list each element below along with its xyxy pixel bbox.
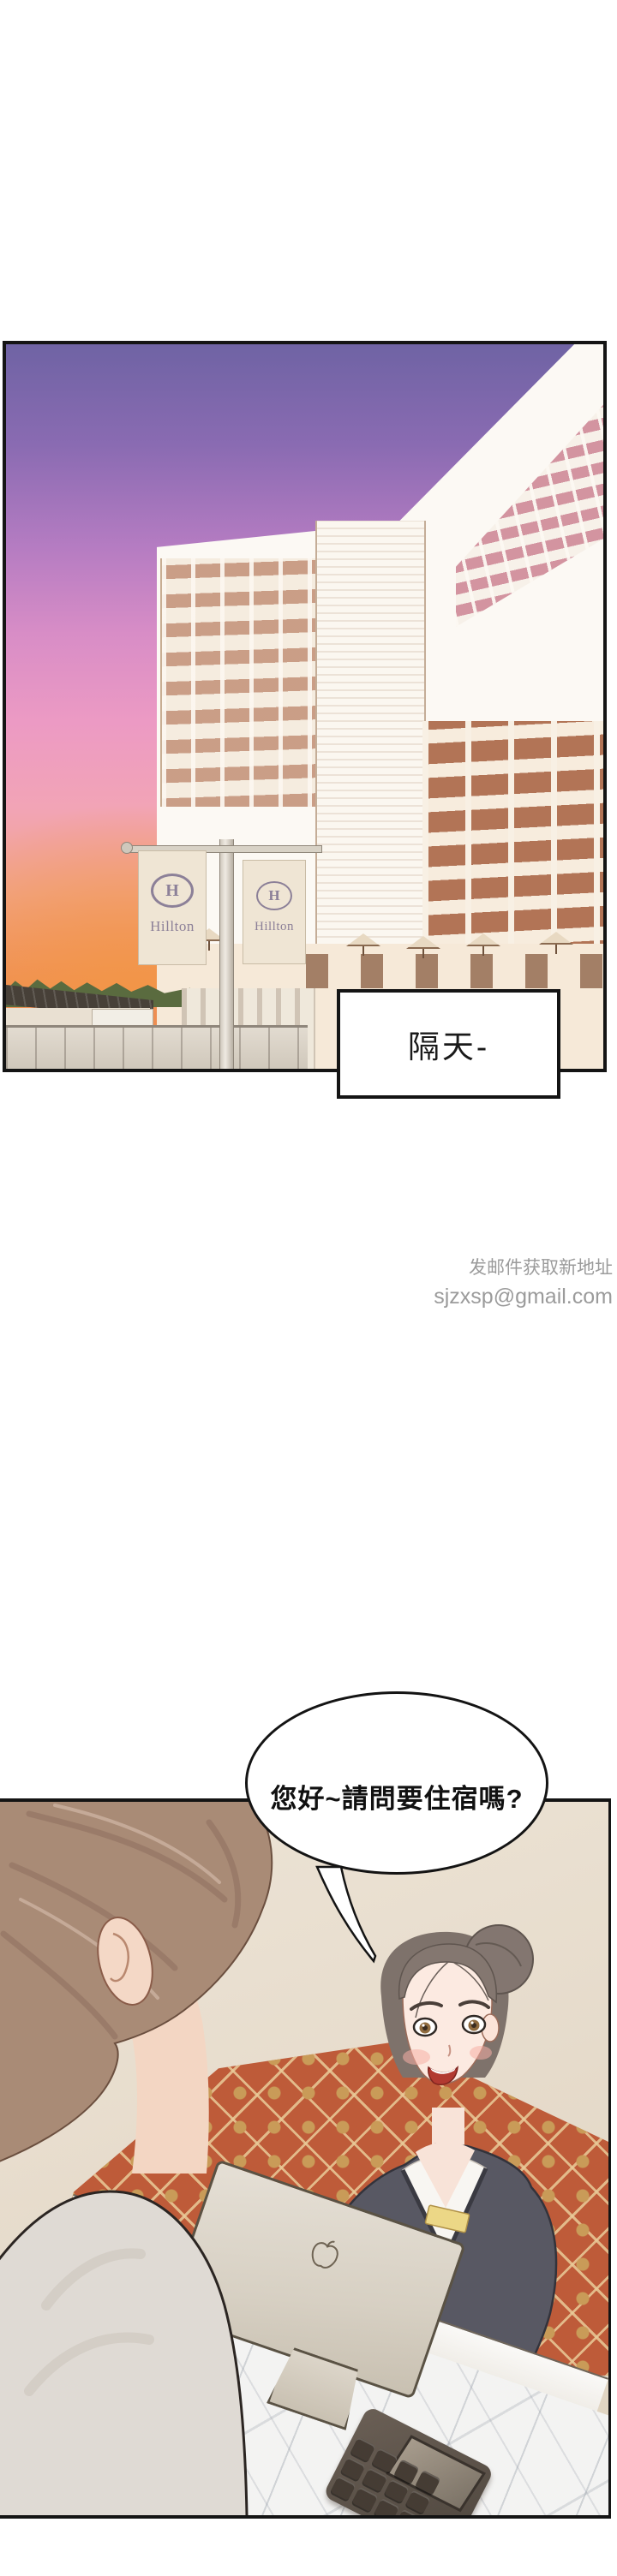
hotel-logo-icon: H (151, 874, 194, 908)
man-shirt (0, 2191, 247, 2515)
umbrella-icon (404, 936, 442, 958)
hotel-banner-label: Hillton (150, 918, 195, 935)
glass-canopy (6, 1025, 308, 1071)
umbrella-icon (344, 933, 382, 956)
speech-bubble-tail (310, 1865, 379, 1966)
hotel-banner-label: Hillton (255, 920, 294, 934)
umbrella-icon (537, 932, 575, 954)
hotel-left-wing (160, 558, 320, 807)
speech-text: 您好~請問要住宿嗎? (270, 1777, 523, 1816)
watermark-line-2: sjzxsp@gmail.com (434, 1282, 613, 1311)
hotel-logo-icon: H (256, 881, 292, 910)
hotel-logo-letter: H (165, 881, 179, 901)
speech-bubble: 您好~請問要住宿嗎? (245, 1691, 548, 1875)
watermark: 发邮件获取新地址 sjzxsp@gmail.com (434, 1255, 613, 1311)
watermark-line-1: 发邮件获取新地址 (434, 1255, 613, 1282)
entrance-doors (306, 954, 603, 988)
hotel-banner-left: H Hillton (138, 850, 207, 965)
umbrella-icon (464, 933, 502, 956)
hotel-logo-letter: H (268, 887, 279, 904)
panel-reception (0, 1798, 611, 2519)
hotel-banner-right: H Hillton (243, 860, 306, 964)
banner-pole (219, 839, 234, 1069)
customer-man-shoulder (0, 2168, 261, 2515)
blush-left (403, 2049, 430, 2065)
caption-text: 隔天- (408, 1021, 489, 1067)
caption-box: 隔天- (337, 989, 560, 1099)
blush-right (470, 2046, 492, 2060)
comic-page: H Hillton H Hillton 隔天- 发邮件获取新地址 sjzxsp@… (0, 0, 617, 2576)
panel-hotel-exterior: H Hillton H Hillton (3, 341, 607, 1072)
banner-crossbar-cap (121, 842, 133, 854)
